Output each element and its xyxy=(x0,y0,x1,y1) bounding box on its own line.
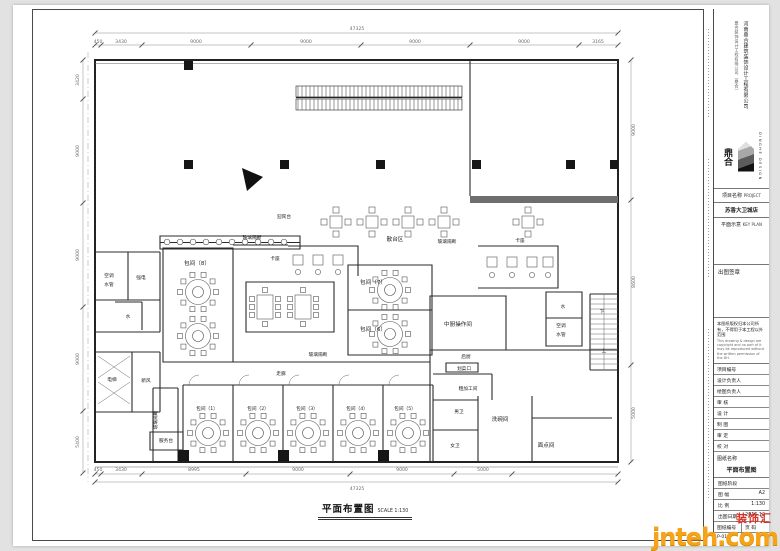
plan-label: 450 xyxy=(94,39,103,45)
chair xyxy=(393,219,399,225)
stool xyxy=(509,272,514,277)
chair xyxy=(381,219,387,225)
plan-label: 包间（1） xyxy=(196,405,218,412)
stool xyxy=(335,269,340,274)
chair xyxy=(402,342,407,347)
chair xyxy=(201,272,206,277)
plan-label: 9000 xyxy=(409,39,421,45)
booth-table xyxy=(333,255,343,265)
chair xyxy=(190,307,195,312)
number-label: 图纸编号 xyxy=(714,522,741,532)
chair xyxy=(405,231,411,237)
plan-label: 水 xyxy=(561,303,566,310)
chair xyxy=(288,313,293,318)
chair xyxy=(324,431,329,436)
size-label: 图 幅 xyxy=(718,491,729,498)
thick-wall-band xyxy=(470,196,618,203)
chair xyxy=(263,288,268,293)
chair xyxy=(320,420,325,425)
title-block: 鼎合装饰设计工程有限公司（鼎合） 河南鼎合建筑装饰设计工程有限公司 鼎合 DIN… xyxy=(703,9,769,541)
plan-label: 服务台 xyxy=(159,437,173,444)
plan-label: 上 xyxy=(602,347,607,354)
plan-label: 3165 xyxy=(592,39,604,45)
booth-table xyxy=(507,257,517,267)
chair xyxy=(411,413,416,418)
chair xyxy=(211,448,216,453)
chair xyxy=(345,219,351,225)
chair xyxy=(238,431,243,436)
booth-table xyxy=(293,255,303,265)
plan-label: 450 xyxy=(94,467,103,473)
stage-label: 图纸阶段 xyxy=(718,480,737,487)
drawing-name-value: 平面布置图 xyxy=(714,463,769,478)
chair xyxy=(441,207,447,213)
chair xyxy=(361,448,366,453)
chair xyxy=(191,420,196,425)
size-value: A2 xyxy=(759,491,765,498)
number-page-values: P-01 xyxy=(714,533,769,541)
lazy-susan xyxy=(303,428,314,439)
chair xyxy=(211,413,216,418)
plan-label: 包间（7） xyxy=(360,278,386,286)
plan-label: 女卫 xyxy=(450,442,460,449)
chair xyxy=(190,272,195,277)
copyright-en: This drawing & design are copyright and … xyxy=(717,339,766,360)
chair xyxy=(181,279,186,284)
chair xyxy=(250,448,255,453)
plan-label: 包间（3） xyxy=(296,405,318,412)
chair xyxy=(402,321,407,326)
signature-rows: 项目编号设计负责人绘图负责人审 核设 计制 图审 定校 对 xyxy=(714,364,769,452)
chair xyxy=(525,231,531,237)
plan-label: 划菜口 xyxy=(457,365,471,372)
plan-label: 玻璃隔断 xyxy=(309,351,328,358)
counter-seat xyxy=(229,239,235,245)
chair xyxy=(400,413,405,418)
plan-label: 水管 xyxy=(104,281,114,288)
plan-label: 玻璃隔断 xyxy=(438,238,457,245)
stage-row: 图纸阶段 xyxy=(714,478,769,489)
chair xyxy=(333,231,339,237)
plan-label: 空调 xyxy=(104,272,114,279)
chair xyxy=(405,207,411,213)
plan-label: 散台区 xyxy=(387,235,404,243)
plan-label: 水 xyxy=(126,313,131,320)
drawing-title-text: 平面布置图 xyxy=(322,504,375,515)
chair xyxy=(513,219,519,225)
chair xyxy=(201,307,206,312)
brand-logo: 鼎合 DINGHE DESIGN xyxy=(714,125,769,188)
chair xyxy=(314,297,319,302)
chair xyxy=(525,207,531,213)
signature-row: 项目编号 xyxy=(714,364,769,375)
chair xyxy=(188,431,193,436)
plan-label: 47325 xyxy=(350,26,365,32)
chair xyxy=(357,219,363,225)
square-table xyxy=(438,216,450,228)
date-row: 出图日期 2016.12 xyxy=(714,511,769,522)
plan-label: 5000 xyxy=(631,407,637,419)
signature-row: 校 对 xyxy=(714,441,769,452)
chair xyxy=(214,290,219,295)
lazy-susan xyxy=(403,428,414,439)
plan-label: 5000 xyxy=(477,467,489,473)
chair xyxy=(369,207,375,213)
booth-table xyxy=(313,255,323,265)
stairs xyxy=(590,294,618,370)
plan-label: 8995 xyxy=(188,467,200,473)
chair xyxy=(274,431,279,436)
plan-label: 9000 xyxy=(190,39,202,45)
chair xyxy=(276,313,281,318)
plan-label: 包间（6） xyxy=(360,325,386,333)
chair xyxy=(382,314,387,319)
chair xyxy=(241,420,246,425)
chair xyxy=(311,413,316,418)
plan-label: 3430 xyxy=(115,39,127,45)
chair xyxy=(393,305,398,310)
titleblock-spacer xyxy=(714,231,769,264)
lazy-susan xyxy=(385,329,396,340)
chair xyxy=(341,441,346,446)
chair xyxy=(391,420,396,425)
plan-label: 9000 xyxy=(75,145,81,157)
plan-label: 新风 xyxy=(141,377,151,384)
stool xyxy=(315,269,320,274)
chair xyxy=(429,219,435,225)
chair xyxy=(370,288,375,293)
counter-seat xyxy=(164,239,170,245)
scale-label: 比 例 xyxy=(718,502,729,509)
chair xyxy=(220,441,225,446)
key-plan-row: 平面示意 KEY PLAN xyxy=(714,217,769,231)
plan-label: 玻璃隔断 xyxy=(243,234,262,241)
lazy-susan xyxy=(193,331,204,342)
chair xyxy=(369,231,375,237)
chair xyxy=(250,305,255,310)
chair xyxy=(373,321,378,326)
chair xyxy=(370,441,375,446)
chair xyxy=(263,322,268,327)
chair xyxy=(400,448,405,453)
titleblock-side-notes xyxy=(704,9,714,541)
scale-row: 比 例 1:130 xyxy=(714,500,769,511)
chair xyxy=(181,344,186,349)
key-plan-label: 平面示意 xyxy=(721,222,741,228)
chair xyxy=(402,298,407,303)
plan-label: 卡座 xyxy=(270,255,280,262)
chair xyxy=(178,334,183,339)
chair xyxy=(320,441,325,446)
lazy-susan xyxy=(203,428,214,439)
plan-label: 9000 xyxy=(631,124,637,136)
chair xyxy=(420,420,425,425)
number-value: P-01 xyxy=(714,533,741,541)
escalator-hatch xyxy=(296,86,462,110)
chair xyxy=(350,413,355,418)
chair xyxy=(374,431,379,436)
key-plan-label-en: KEY PLAN xyxy=(743,222,762,227)
chair xyxy=(181,323,186,328)
plan-label: 9000 xyxy=(292,467,304,473)
chair xyxy=(210,344,215,349)
scale-value: 1:130 xyxy=(751,502,765,509)
plan-label: 后厨 xyxy=(461,353,471,360)
plan-label: 玻璃隔断 xyxy=(152,410,159,429)
chair xyxy=(373,342,378,347)
square-table xyxy=(366,216,378,228)
rect-table xyxy=(257,295,273,319)
chair xyxy=(373,298,378,303)
page-label: 页 码 xyxy=(741,522,769,532)
plan-label: 面点间 xyxy=(538,441,555,449)
chair xyxy=(288,431,293,436)
chair xyxy=(276,305,281,310)
chair xyxy=(388,431,393,436)
chair xyxy=(314,313,319,318)
chair xyxy=(361,413,366,418)
chair xyxy=(341,420,346,425)
chair xyxy=(420,441,425,446)
chair xyxy=(250,313,255,318)
copyright-cn: 本图纸版权归本公司所有，不得用于本工程以外范围 xyxy=(717,321,766,337)
chair xyxy=(453,219,459,225)
stool xyxy=(529,272,534,277)
signature-row: 审 定 xyxy=(714,430,769,441)
plan-label: 包间（5） xyxy=(394,405,416,412)
stool xyxy=(295,269,300,274)
chair xyxy=(406,332,411,337)
chair xyxy=(250,297,255,302)
chair xyxy=(441,231,447,237)
chair xyxy=(391,441,396,446)
counter-seat xyxy=(177,239,183,245)
chair xyxy=(382,349,387,354)
plan-label: 电梯 xyxy=(107,376,117,383)
chair xyxy=(382,305,387,310)
date-value: 2016.12 xyxy=(745,513,765,520)
chair xyxy=(178,290,183,295)
counter-seat xyxy=(203,239,209,245)
plan-label: 47325 xyxy=(350,486,365,492)
chair xyxy=(411,448,416,453)
chair xyxy=(261,413,266,418)
drawing-title: 平面布置图SCALE 1:130 xyxy=(318,497,412,520)
chair xyxy=(300,448,305,453)
lazy-susan xyxy=(385,285,396,296)
plan-walls xyxy=(95,60,618,467)
logo-wordmark: DINGHE DESIGN xyxy=(758,132,762,181)
plan-label: 5400 xyxy=(75,436,81,448)
plan-label: 8600 xyxy=(631,276,637,288)
chair xyxy=(333,207,339,213)
chair xyxy=(382,270,387,275)
booth-table xyxy=(543,257,553,267)
chair xyxy=(270,420,275,425)
chair xyxy=(370,420,375,425)
square-table xyxy=(402,216,414,228)
chair xyxy=(250,413,255,418)
plan-furniture xyxy=(164,207,553,453)
square-table xyxy=(330,216,342,228)
chair xyxy=(314,305,319,310)
signature-row: 制 图 xyxy=(714,419,769,430)
chair xyxy=(321,219,327,225)
chair xyxy=(393,314,398,319)
chair xyxy=(224,431,229,436)
project-name: 苏香大卫城店 xyxy=(714,202,769,217)
chair xyxy=(406,288,411,293)
plan-label: 男卫 xyxy=(454,409,464,415)
lazy-susan xyxy=(253,428,264,439)
plan-label: 包间（2） xyxy=(247,405,269,412)
company-name-secondary: 鼎合装饰设计工程有限公司（鼎合） xyxy=(734,21,740,125)
chair xyxy=(181,300,186,305)
plan-label: 空调 xyxy=(556,322,566,329)
project-label-row: 项目名称 PROJECT xyxy=(714,188,769,202)
signature-row: 设 计 xyxy=(714,408,769,419)
date-label: 出图日期 xyxy=(718,513,737,520)
chair xyxy=(200,413,205,418)
chair xyxy=(210,300,215,305)
plan-label: 走廊 xyxy=(276,370,286,377)
plan-label: 3430 xyxy=(115,467,127,473)
copyright-note: 本图纸版权归本公司所有，不得用于本工程以外范围 This drawing & d… xyxy=(714,318,769,364)
chair xyxy=(338,431,343,436)
stool xyxy=(545,272,550,277)
plan-label: 9000 xyxy=(75,249,81,261)
counter-seat xyxy=(281,239,287,245)
booth-table xyxy=(527,257,537,267)
drawing-name-label: 图纸名称 xyxy=(714,452,769,463)
plan-label: 包间（8） xyxy=(184,259,210,267)
chair xyxy=(200,448,205,453)
chair xyxy=(214,334,219,339)
chair xyxy=(311,448,316,453)
chair xyxy=(190,316,195,321)
plan-label: 迎宾台 xyxy=(277,213,291,220)
project-label: 项目名称 xyxy=(722,193,742,199)
plan-label: 3420 xyxy=(75,74,81,86)
project-label-en: PROJECT xyxy=(744,193,761,198)
chair xyxy=(301,288,306,293)
counter-seat xyxy=(268,239,274,245)
chair xyxy=(300,413,305,418)
chair xyxy=(220,420,225,425)
plan-label: 9000 xyxy=(300,39,312,45)
plan-label: 水管 xyxy=(556,331,566,338)
plan-label: 洗碗间 xyxy=(492,415,509,423)
chair xyxy=(191,441,196,446)
drawing-scale-text: SCALE 1:130 xyxy=(378,509,409,514)
chair xyxy=(393,270,398,275)
floor-plan: 4732545034309000900090009000316545034308… xyxy=(32,9,703,541)
chair xyxy=(270,441,275,446)
lazy-susan xyxy=(353,428,364,439)
number-page-header: 图纸编号 页 码 xyxy=(714,522,769,533)
plan-label: 卡座 xyxy=(515,237,525,244)
plan-label: 下 xyxy=(600,309,605,315)
plan-label: 粗加工间 xyxy=(459,385,478,392)
stool xyxy=(489,272,494,277)
chair xyxy=(350,448,355,453)
plan-label: 9000 xyxy=(75,353,81,365)
counter-seat xyxy=(216,239,222,245)
size-row: 图 幅 A2 xyxy=(714,489,769,500)
signature-row: 绘图负责人 xyxy=(714,386,769,397)
chair xyxy=(201,316,206,321)
chair xyxy=(210,323,215,328)
company-name-primary: 河南鼎合建筑装饰设计工程有限公司 xyxy=(743,21,750,125)
plan-label: 9000 xyxy=(396,467,408,473)
company-name-vertical: 鼎合装饰设计工程有限公司（鼎合） 河南鼎合建筑装饰设计工程有限公司 xyxy=(714,9,769,125)
square-table xyxy=(522,216,534,228)
chair xyxy=(288,305,293,310)
chair xyxy=(291,441,296,446)
chair xyxy=(417,219,423,225)
chair xyxy=(288,297,293,302)
counter-seat xyxy=(190,239,196,245)
stamp-label: 出图签章 xyxy=(714,264,769,279)
chair xyxy=(201,351,206,356)
plan-label: 强电 xyxy=(136,274,146,281)
entrance-arrow-icon xyxy=(242,168,263,191)
door-arcs xyxy=(189,375,399,385)
chair xyxy=(261,448,266,453)
chair xyxy=(210,279,215,284)
signature-row: 设计负责人 xyxy=(714,375,769,386)
chair xyxy=(301,322,306,327)
plan-label: 9000 xyxy=(518,39,530,45)
booth-table xyxy=(487,257,497,267)
plan-label: 中厨操作间 xyxy=(444,320,472,328)
logo-calligraphy: 鼎合 xyxy=(721,148,734,166)
chair xyxy=(537,219,543,225)
chair xyxy=(291,420,296,425)
chair xyxy=(393,349,398,354)
chair xyxy=(241,441,246,446)
lazy-susan xyxy=(193,287,204,298)
signature-row: 审 核 xyxy=(714,397,769,408)
stamp-area xyxy=(714,279,769,318)
chair xyxy=(276,297,281,302)
chair xyxy=(402,277,407,282)
rect-table xyxy=(295,295,311,319)
chair xyxy=(424,431,429,436)
plan-label: 包间（4） xyxy=(346,405,368,412)
logo-diamond-icon xyxy=(738,142,754,172)
chair xyxy=(190,351,195,356)
